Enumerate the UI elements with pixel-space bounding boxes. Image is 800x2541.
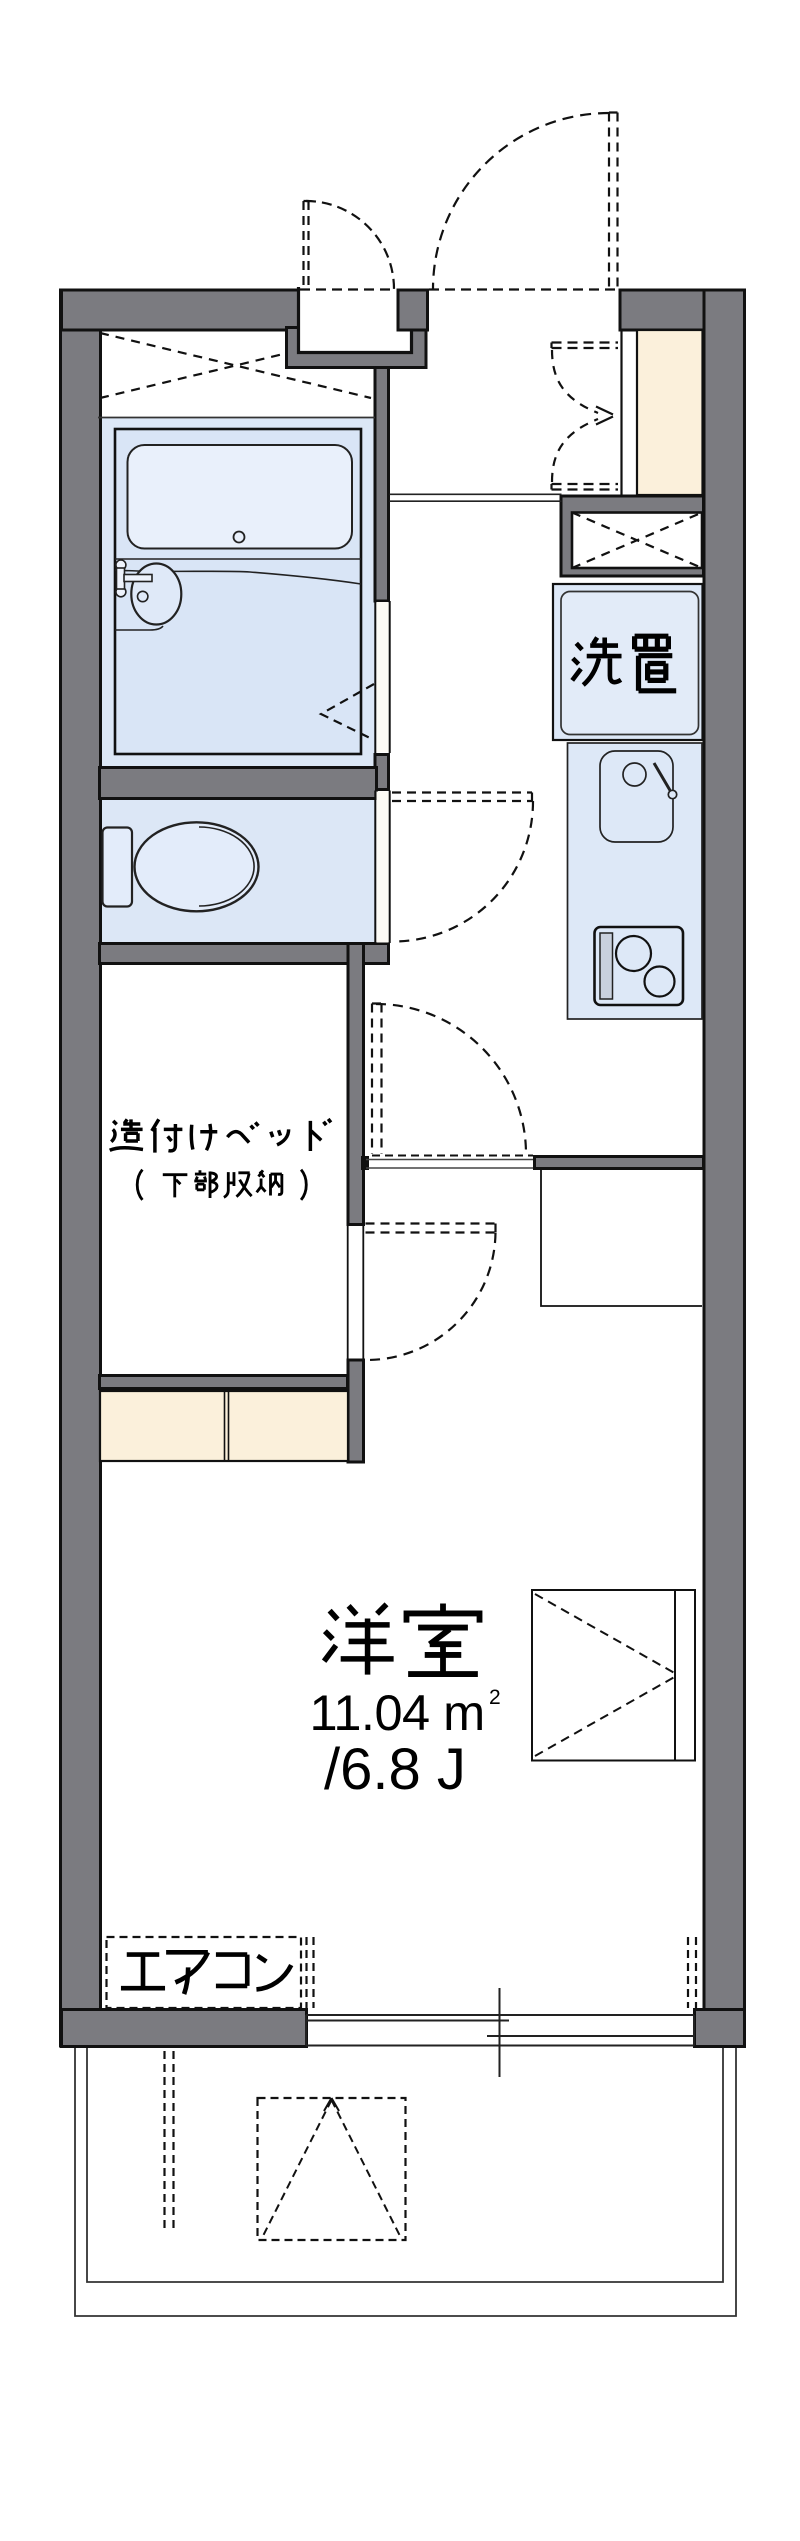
svg-text:/6.8 J: /6.8 J <box>324 1737 466 1802</box>
svg-text:2: 2 <box>489 1686 501 1709</box>
svg-text:11.04 m: 11.04 m <box>310 1684 485 1741</box>
